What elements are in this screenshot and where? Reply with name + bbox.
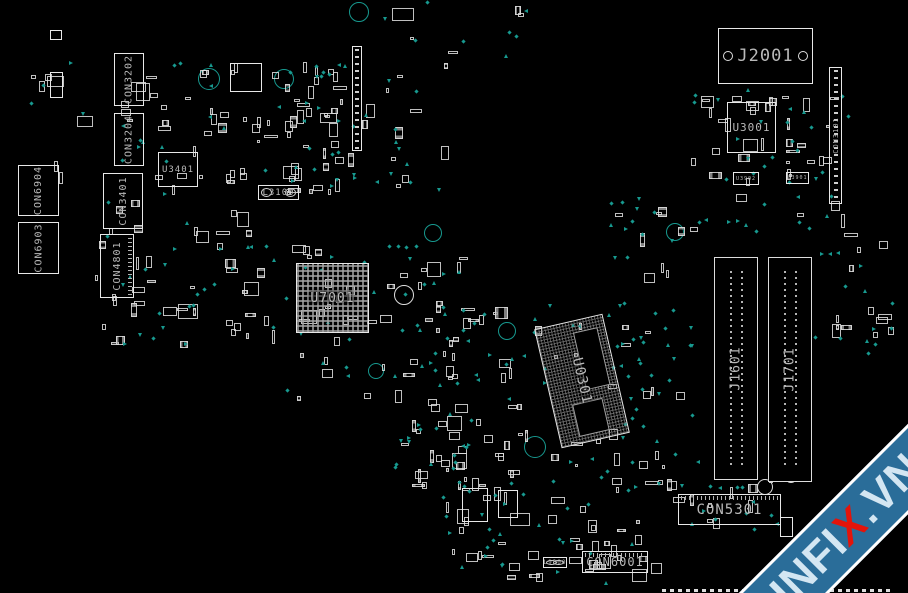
filler-part bbox=[410, 109, 422, 113]
test-point bbox=[271, 325, 275, 329]
filler-part bbox=[322, 369, 333, 378]
filler-part bbox=[412, 420, 416, 432]
test-point bbox=[420, 364, 424, 368]
filler-part bbox=[797, 143, 806, 148]
filler-part bbox=[193, 308, 196, 316]
test-point bbox=[510, 357, 514, 361]
filler-part bbox=[807, 160, 815, 164]
test-point bbox=[838, 336, 842, 340]
test-point bbox=[872, 327, 876, 331]
test-point bbox=[524, 9, 528, 13]
filler-part bbox=[484, 435, 493, 443]
connector-pin-row bbox=[128, 237, 132, 295]
test-point bbox=[438, 383, 442, 387]
test-point bbox=[670, 239, 674, 243]
test-point bbox=[634, 407, 638, 411]
test-point bbox=[455, 381, 459, 385]
test-point bbox=[697, 220, 701, 224]
test-point bbox=[407, 436, 411, 440]
filler-part bbox=[576, 544, 583, 550]
filler-part bbox=[509, 368, 512, 379]
test-point bbox=[466, 339, 470, 343]
filler-part bbox=[478, 551, 482, 560]
test-point bbox=[655, 439, 659, 443]
filler-part bbox=[525, 430, 528, 442]
filler-part bbox=[617, 529, 626, 532]
filler-part bbox=[297, 396, 301, 401]
screw-hole bbox=[424, 224, 442, 242]
component-unlabeled bbox=[230, 63, 262, 92]
test-point bbox=[638, 361, 642, 365]
test-point bbox=[437, 188, 441, 192]
component-con6001: CON6001 bbox=[582, 551, 648, 573]
filler-part bbox=[453, 337, 459, 342]
filler-part bbox=[422, 482, 427, 489]
component-j1701: J1701 bbox=[768, 257, 812, 482]
filler-part bbox=[636, 520, 640, 524]
test-point bbox=[353, 176, 357, 180]
test-point bbox=[400, 328, 404, 332]
test-point bbox=[556, 570, 560, 574]
filler-part bbox=[331, 141, 339, 148]
test-point bbox=[442, 272, 446, 276]
test-point bbox=[618, 304, 622, 308]
test-point bbox=[330, 255, 334, 259]
test-point bbox=[397, 147, 401, 151]
test-point bbox=[173, 247, 177, 251]
component-u3901: U3901 bbox=[786, 172, 809, 184]
component-con3101: CON3101 bbox=[829, 67, 842, 204]
filler-part bbox=[328, 189, 331, 195]
mount-hole bbox=[798, 51, 808, 61]
filler-part bbox=[340, 99, 343, 105]
test-point bbox=[264, 244, 268, 248]
test-point bbox=[476, 378, 480, 382]
component-unlabeled bbox=[50, 30, 62, 40]
inductor-pad bbox=[261, 188, 272, 197]
test-point bbox=[389, 172, 393, 176]
test-point bbox=[394, 140, 398, 144]
filler-part bbox=[427, 262, 441, 277]
component-con3401: CON3401 bbox=[103, 173, 143, 229]
filler-part bbox=[446, 502, 449, 513]
filler-part bbox=[447, 416, 462, 431]
filler-part bbox=[517, 404, 522, 410]
test-point bbox=[343, 64, 347, 68]
test-point bbox=[222, 126, 226, 130]
component-con6904: CON6904 bbox=[18, 165, 59, 216]
filler-part bbox=[518, 433, 523, 436]
component-con4801: CON4801 bbox=[100, 234, 134, 298]
test-point bbox=[330, 152, 334, 156]
filler-part bbox=[782, 96, 789, 99]
test-point bbox=[754, 229, 758, 233]
test-point bbox=[724, 177, 728, 181]
test-point bbox=[337, 63, 341, 67]
test-point bbox=[498, 532, 502, 536]
test-point bbox=[634, 485, 638, 489]
filler-part bbox=[666, 270, 669, 278]
filler-part bbox=[272, 72, 279, 79]
component-unlabeled bbox=[462, 488, 488, 522]
filler-part bbox=[569, 557, 582, 564]
filler-part bbox=[676, 392, 685, 400]
filler-part bbox=[190, 286, 195, 289]
filler-part bbox=[246, 333, 249, 339]
filler-part bbox=[551, 497, 565, 504]
filler-part bbox=[479, 484, 486, 487]
test-point bbox=[629, 397, 633, 401]
test-point bbox=[653, 311, 657, 315]
test-point bbox=[178, 61, 182, 65]
test-point bbox=[718, 486, 722, 490]
test-point bbox=[788, 107, 792, 111]
filler-part bbox=[495, 307, 508, 319]
filler-part bbox=[303, 246, 310, 255]
mount-hole bbox=[723, 51, 733, 61]
test-point bbox=[672, 357, 676, 361]
filler-part bbox=[294, 99, 300, 102]
filler-part bbox=[661, 263, 664, 273]
filler-part bbox=[325, 115, 330, 118]
filler-part bbox=[459, 527, 464, 534]
test-point bbox=[537, 523, 541, 527]
test-point bbox=[472, 321, 476, 325]
filler-part bbox=[392, 8, 414, 21]
filler-part bbox=[242, 290, 248, 294]
filler-part bbox=[323, 148, 326, 159]
filler-part bbox=[509, 563, 520, 571]
test-point bbox=[212, 282, 216, 286]
test-point bbox=[762, 164, 766, 168]
filler-part bbox=[836, 315, 839, 323]
filler-part bbox=[498, 453, 504, 461]
screw-hole bbox=[498, 322, 516, 340]
filler-part bbox=[380, 315, 392, 323]
test-point bbox=[317, 106, 321, 110]
test-point bbox=[504, 54, 508, 58]
test-point bbox=[820, 170, 824, 174]
filler-part bbox=[245, 313, 256, 317]
test-point bbox=[422, 282, 426, 286]
test-point bbox=[433, 351, 437, 355]
component-label: U3401 bbox=[159, 153, 197, 186]
test-point bbox=[609, 201, 613, 205]
test-point bbox=[284, 296, 288, 300]
test-point bbox=[448, 412, 452, 416]
test-point bbox=[417, 423, 421, 427]
component-l9300: L9300 bbox=[543, 557, 567, 568]
dimm-pin-row bbox=[741, 271, 743, 466]
filler-part bbox=[736, 194, 747, 202]
test-point bbox=[736, 219, 740, 223]
test-point bbox=[337, 119, 341, 123]
test-point bbox=[548, 304, 552, 308]
filler-part bbox=[131, 303, 137, 317]
test-point bbox=[514, 34, 518, 38]
test-point bbox=[624, 227, 628, 231]
component-unlabeled bbox=[50, 72, 63, 98]
test-point bbox=[621, 436, 625, 440]
filler-part bbox=[498, 542, 506, 545]
filler-part bbox=[879, 241, 888, 249]
filler-part bbox=[455, 404, 468, 413]
filler-part bbox=[395, 390, 402, 403]
component-u3902: U3902 bbox=[733, 172, 759, 185]
test-point bbox=[507, 397, 511, 401]
test-point bbox=[372, 290, 376, 294]
filler-part bbox=[504, 441, 510, 450]
filler-part bbox=[459, 257, 468, 260]
filler-part bbox=[307, 255, 312, 259]
test-point bbox=[561, 541, 565, 545]
screw-hole bbox=[349, 2, 369, 22]
filler-part bbox=[309, 189, 313, 194]
filler-part bbox=[334, 337, 340, 346]
filler-part bbox=[614, 453, 620, 466]
test-point bbox=[294, 165, 298, 169]
filler-part bbox=[656, 212, 662, 215]
filler-part bbox=[446, 366, 454, 377]
test-point bbox=[399, 439, 403, 443]
test-point bbox=[467, 443, 471, 447]
filler-part bbox=[102, 324, 106, 330]
filler-part bbox=[678, 227, 685, 236]
filler-part bbox=[844, 233, 858, 237]
filler-part bbox=[315, 249, 322, 256]
test-point bbox=[708, 484, 712, 488]
test-point bbox=[586, 502, 590, 506]
filler-part bbox=[518, 13, 524, 17]
test-point bbox=[657, 482, 661, 486]
filler-part bbox=[691, 158, 696, 166]
test-point bbox=[302, 119, 306, 123]
filler-part bbox=[243, 117, 247, 122]
filler-part bbox=[857, 247, 861, 253]
filler-part bbox=[246, 230, 252, 237]
dimm-pin-row bbox=[730, 271, 732, 466]
test-point bbox=[219, 247, 223, 251]
filler-part bbox=[748, 484, 758, 493]
filler-part bbox=[329, 123, 338, 137]
component-label: U7001 bbox=[297, 264, 368, 332]
inductor-pad bbox=[285, 188, 296, 197]
filler-part bbox=[257, 140, 260, 143]
test-point bbox=[649, 373, 653, 377]
filler-part bbox=[257, 268, 265, 278]
test-point bbox=[813, 335, 817, 339]
test-point bbox=[863, 289, 867, 293]
filler-part bbox=[508, 470, 520, 475]
test-point bbox=[414, 244, 418, 248]
test-point bbox=[434, 426, 438, 430]
test-point bbox=[569, 460, 573, 464]
filler-part bbox=[797, 213, 804, 217]
test-point bbox=[461, 39, 465, 43]
connector-pin-row bbox=[585, 553, 645, 557]
filler-part bbox=[479, 315, 484, 325]
test-point bbox=[716, 98, 720, 102]
test-point bbox=[565, 506, 569, 510]
test-point bbox=[615, 344, 619, 348]
test-point bbox=[69, 61, 73, 65]
test-point bbox=[383, 17, 387, 21]
test-point bbox=[620, 200, 624, 204]
test-point bbox=[285, 388, 289, 392]
test-point bbox=[488, 353, 492, 357]
filler-part bbox=[210, 108, 213, 115]
test-point bbox=[441, 305, 445, 309]
test-point bbox=[319, 74, 323, 78]
filler-part bbox=[615, 213, 623, 217]
test-point bbox=[387, 244, 391, 248]
filler-part bbox=[575, 464, 578, 467]
test-point bbox=[346, 374, 350, 378]
filler-part bbox=[849, 265, 854, 272]
filler-part bbox=[644, 273, 655, 283]
test-point bbox=[160, 145, 164, 149]
test-point bbox=[432, 281, 436, 285]
test-point bbox=[272, 258, 276, 262]
boardview-canvas: HNFIX.VN J2001U3001U3902U3901CON3101CON3… bbox=[0, 0, 908, 593]
test-point bbox=[625, 255, 629, 259]
test-point bbox=[157, 311, 161, 315]
test-point bbox=[414, 89, 418, 93]
filler-part bbox=[306, 108, 312, 117]
test-point bbox=[630, 460, 634, 464]
test-point bbox=[704, 218, 708, 222]
test-point bbox=[143, 267, 147, 271]
test-point bbox=[163, 192, 167, 196]
test-point bbox=[305, 101, 309, 105]
filler-part bbox=[655, 451, 659, 460]
test-point bbox=[746, 88, 750, 92]
test-point bbox=[461, 328, 465, 332]
test-point bbox=[407, 440, 411, 444]
filler-part bbox=[231, 210, 237, 217]
filler-part bbox=[387, 284, 395, 289]
test-point bbox=[637, 197, 641, 201]
component-u3401: U3401 bbox=[158, 152, 198, 187]
test-point bbox=[396, 244, 400, 248]
filler-part bbox=[185, 97, 191, 100]
test-point bbox=[599, 475, 603, 479]
component-con5301: CON5301 bbox=[678, 494, 781, 525]
filler-part bbox=[323, 163, 329, 171]
filler-part bbox=[643, 391, 651, 399]
filler-part bbox=[463, 318, 471, 329]
filler-part bbox=[548, 515, 557, 524]
test-point bbox=[209, 63, 213, 67]
test-point bbox=[820, 252, 824, 256]
filler-part bbox=[701, 96, 714, 108]
test-point bbox=[690, 413, 694, 417]
filler-part bbox=[216, 231, 230, 235]
filler-part bbox=[464, 477, 467, 482]
test-point bbox=[836, 251, 840, 255]
filler-part bbox=[428, 399, 437, 406]
inductor-pad bbox=[553, 560, 564, 565]
filler-part bbox=[95, 275, 98, 281]
filler-part bbox=[616, 487, 619, 493]
test-point bbox=[814, 177, 818, 181]
test-point bbox=[444, 514, 448, 518]
test-point bbox=[418, 427, 422, 431]
test-point bbox=[408, 257, 412, 261]
test-point bbox=[667, 378, 671, 382]
filler-part bbox=[31, 75, 36, 79]
filler-part bbox=[397, 75, 403, 78]
test-point bbox=[639, 336, 643, 340]
test-point bbox=[448, 531, 452, 535]
filler-part bbox=[418, 469, 421, 483]
cpu-die-small bbox=[572, 398, 609, 437]
filler-part bbox=[635, 535, 642, 545]
test-point bbox=[418, 328, 422, 332]
test-point bbox=[790, 139, 794, 143]
filler-part bbox=[240, 168, 245, 175]
filler-part bbox=[396, 184, 401, 188]
test-point bbox=[630, 542, 634, 546]
component-label: CON6904 bbox=[14, 171, 63, 210]
test-point bbox=[208, 115, 212, 119]
filler-part bbox=[150, 93, 158, 98]
filler-part bbox=[448, 51, 458, 54]
filler-part bbox=[362, 120, 368, 129]
test-point bbox=[630, 416, 634, 420]
component-con3202: CON3202 bbox=[114, 53, 144, 106]
test-point bbox=[404, 245, 408, 249]
component-unlabeled bbox=[498, 490, 518, 518]
filler-part bbox=[415, 471, 428, 479]
filler-part bbox=[418, 282, 422, 290]
test-point bbox=[429, 361, 433, 365]
component-label: U3901 bbox=[787, 173, 808, 183]
filler-part bbox=[441, 460, 450, 467]
filler-part bbox=[335, 157, 344, 164]
test-point bbox=[641, 340, 645, 344]
filler-part bbox=[403, 373, 415, 377]
test-point bbox=[123, 342, 127, 346]
dimm-pin-row bbox=[795, 271, 797, 467]
component-u3001: U3001 bbox=[727, 102, 776, 153]
test-point bbox=[671, 308, 675, 312]
test-point bbox=[507, 30, 511, 34]
filler-part bbox=[300, 353, 304, 358]
filler-part bbox=[162, 120, 169, 126]
filler-part bbox=[348, 153, 354, 167]
filler-part bbox=[438, 421, 447, 427]
test-point bbox=[469, 418, 473, 422]
test-point bbox=[626, 374, 630, 378]
component-label: CON3204 bbox=[104, 126, 155, 154]
test-point bbox=[451, 466, 455, 470]
filler-part bbox=[662, 465, 665, 469]
test-point bbox=[327, 72, 331, 76]
component-j1601: J1601 bbox=[714, 257, 758, 480]
filler-part bbox=[333, 86, 347, 90]
filler-part bbox=[588, 520, 597, 533]
test-point bbox=[394, 462, 398, 466]
filler-part bbox=[449, 340, 453, 347]
test-point bbox=[626, 488, 630, 492]
component-u7001: U7001 bbox=[296, 263, 369, 333]
test-point bbox=[263, 168, 267, 172]
filler-part bbox=[267, 120, 270, 126]
test-point bbox=[291, 179, 295, 183]
component-l3100: L3100 bbox=[258, 185, 299, 200]
test-point bbox=[692, 100, 696, 104]
